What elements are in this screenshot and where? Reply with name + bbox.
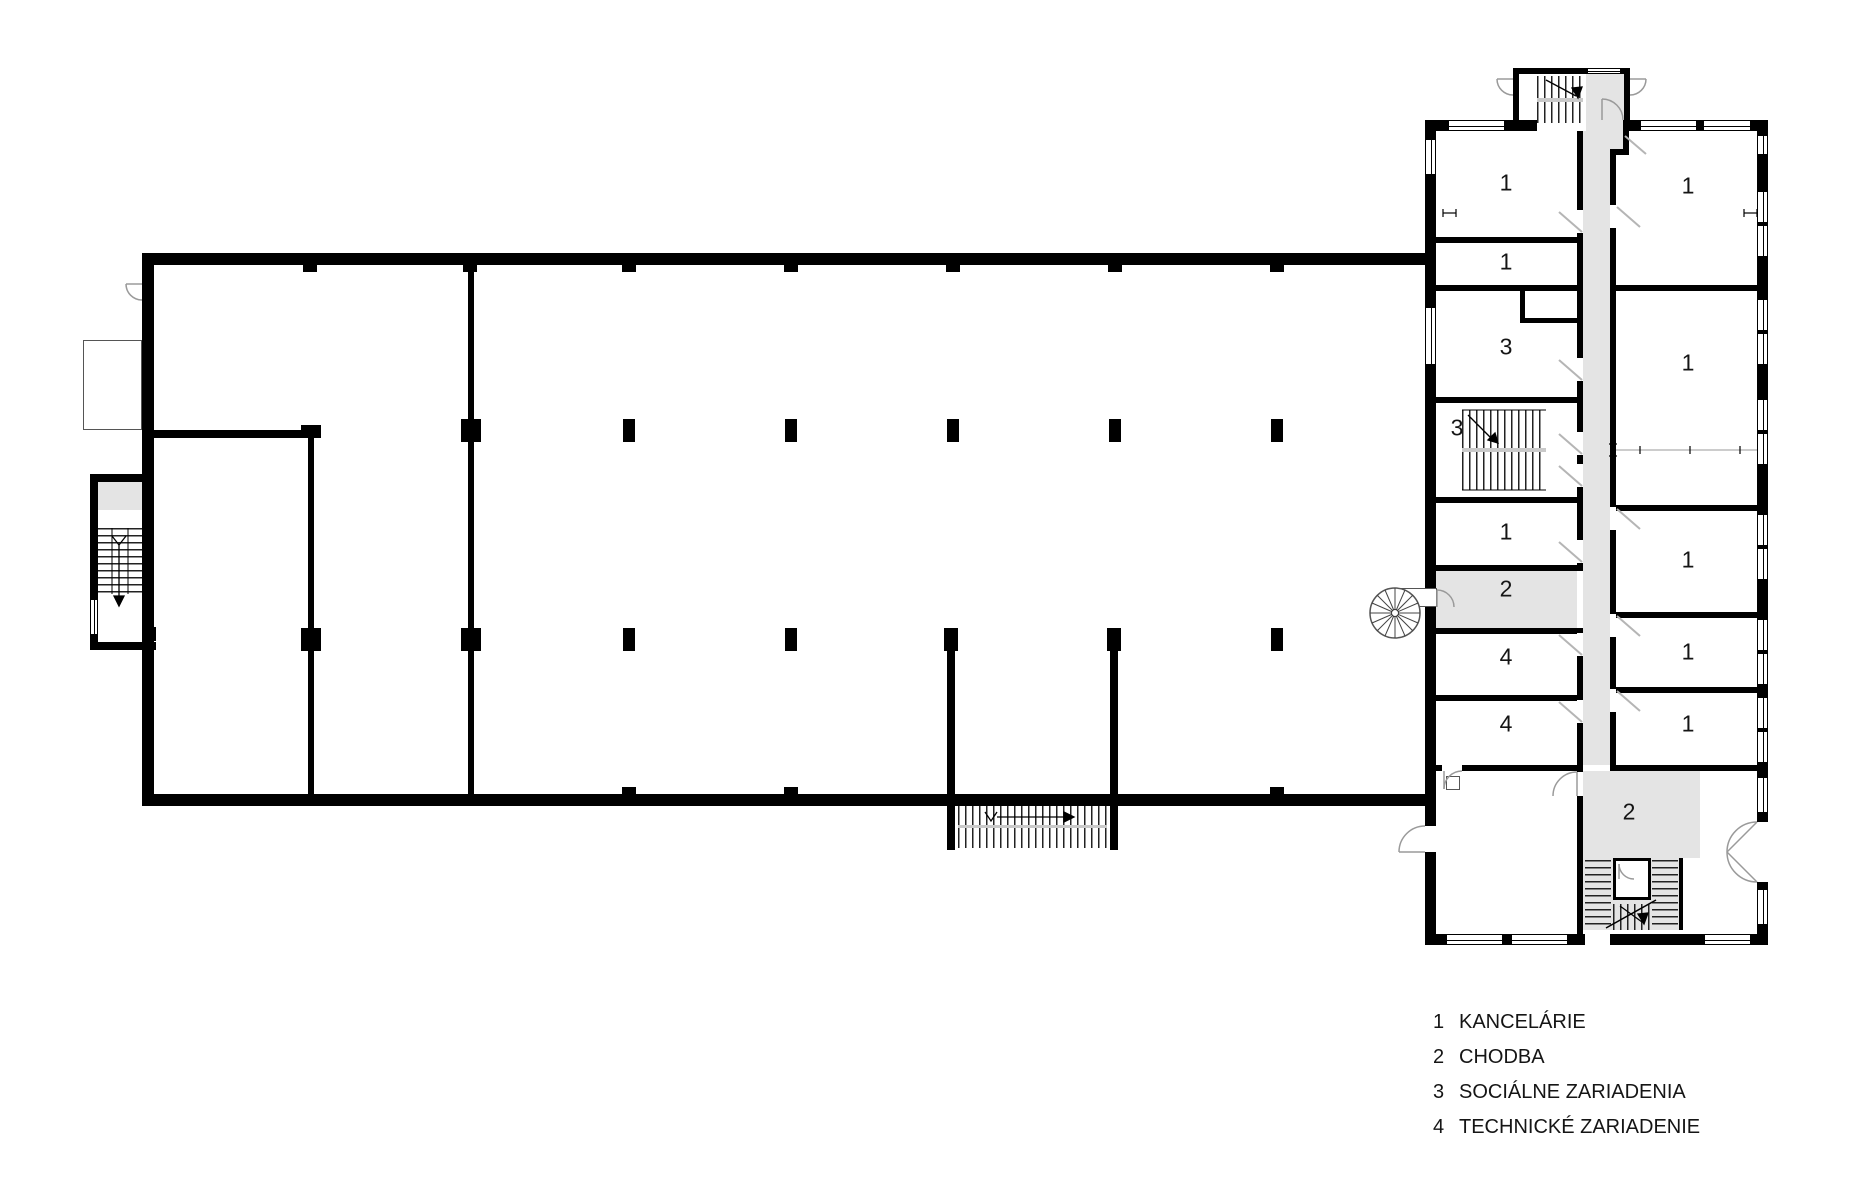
- column: [785, 419, 797, 442]
- floor-plan: 11331244211111 1KANCELÁRIE2CHODBA3SOCIÁL…: [0, 0, 1872, 1190]
- pilaster: [784, 265, 798, 272]
- legend-number: 3: [1433, 1081, 1459, 1104]
- wall: [1110, 650, 1118, 794]
- wall: [1425, 120, 1436, 945]
- wall: [142, 253, 1436, 265]
- pilaster: [1108, 265, 1122, 272]
- pilaster: [1270, 265, 1284, 272]
- window: [1757, 226, 1768, 256]
- corridor-floor: [1583, 131, 1610, 770]
- pilaster: [784, 787, 798, 794]
- column: [947, 419, 959, 442]
- wall: [154, 430, 314, 438]
- pilaster: [1270, 787, 1284, 794]
- wall: [1436, 285, 1577, 291]
- room-label: 1: [1500, 170, 1513, 197]
- room-label: 1: [1500, 519, 1513, 546]
- elevator-shaft: [1613, 858, 1651, 900]
- column: [785, 628, 797, 651]
- window: [1757, 434, 1768, 464]
- legend-label: CHODBA: [1459, 1046, 1545, 1069]
- window: [1425, 308, 1436, 364]
- window: [1757, 778, 1768, 812]
- legend-label: SOCIÁLNE ZARIADENIA: [1459, 1081, 1686, 1104]
- pilaster: [622, 787, 636, 794]
- wall: [1436, 695, 1577, 701]
- wing-side-staircase: [1462, 410, 1546, 448]
- wall: [1616, 687, 1757, 693]
- stair-rail: [112, 410, 1546, 594]
- column: [1271, 419, 1283, 442]
- pilaster: [946, 265, 960, 272]
- window: [1449, 120, 1504, 131]
- window: [1757, 334, 1768, 364]
- corridor-floor: [1583, 770, 1700, 858]
- room-label: 1: [1682, 350, 1695, 377]
- wing-side-staircase: [1462, 452, 1546, 490]
- window: [1757, 300, 1768, 330]
- stair-landing: [958, 825, 1107, 828]
- column: [1109, 419, 1121, 442]
- legend-label: KANCELÁRIE: [1459, 1011, 1586, 1034]
- column: [944, 628, 958, 651]
- wall: [1436, 237, 1577, 243]
- wall: [90, 642, 156, 650]
- legend-item: 4TECHNICKÉ ZARIADENIE: [1433, 1110, 1700, 1145]
- door-opening: [1757, 822, 1768, 882]
- door-opening: [1583, 765, 1610, 771]
- door-opening: [1585, 934, 1610, 945]
- window: [1757, 192, 1768, 222]
- legend-number: 2: [1433, 1046, 1459, 1069]
- fixture: [1446, 776, 1460, 790]
- stair-landing: [98, 482, 142, 510]
- column: [461, 419, 481, 442]
- door-opening: [1577, 432, 1583, 455]
- room-label: 4: [1500, 711, 1513, 738]
- wall: [468, 265, 474, 794]
- wall: [1513, 68, 1519, 120]
- window: [1704, 120, 1750, 131]
- wall: [90, 474, 142, 482]
- room-label: 1: [1682, 173, 1695, 200]
- legend-item: 1KANCELÁRIE: [1433, 1005, 1700, 1040]
- room-label: 1: [1682, 711, 1695, 738]
- wall: [1436, 497, 1577, 503]
- door-opening: [1577, 210, 1583, 233]
- window: [1757, 400, 1768, 430]
- legend-number: 4: [1433, 1116, 1459, 1139]
- window: [1447, 934, 1502, 945]
- wall: [142, 794, 1436, 806]
- wall: [1679, 858, 1683, 930]
- window: [1757, 654, 1768, 684]
- corridor-floor: [1586, 74, 1624, 120]
- room-label: 2: [1623, 799, 1636, 826]
- door-opening: [1577, 633, 1583, 656]
- column: [623, 419, 635, 442]
- room-label: 3: [1451, 415, 1464, 442]
- wall: [1520, 318, 1577, 323]
- wall: [1624, 68, 1630, 120]
- legend-number: 1: [1433, 1011, 1459, 1034]
- wall: [947, 650, 955, 794]
- wall: [1623, 120, 1629, 155]
- legend-label: TECHNICKÉ ZARIADENIE: [1459, 1116, 1700, 1139]
- wall: [947, 806, 955, 850]
- legend: 1KANCELÁRIE2CHODBA3SOCIÁLNE ZARIADENIA4T…: [1433, 1005, 1700, 1145]
- room-label: 2: [1500, 576, 1513, 603]
- wall: [1110, 806, 1118, 850]
- wall: [308, 434, 314, 794]
- window: [1757, 136, 1768, 154]
- window: [1757, 890, 1768, 924]
- window: [1705, 934, 1750, 945]
- wall: [142, 253, 154, 806]
- pilaster: [463, 265, 477, 272]
- door-opening: [1577, 772, 1583, 796]
- stair-landing: [1395, 588, 1437, 607]
- column: [623, 628, 635, 651]
- wall: [1610, 155, 1616, 765]
- column: [1271, 628, 1283, 651]
- wall: [1616, 285, 1757, 291]
- pilaster: [303, 265, 317, 272]
- door-opening: [1577, 540, 1583, 563]
- window: [1757, 549, 1768, 579]
- wall: [1616, 505, 1757, 511]
- side-staircase: [98, 528, 142, 594]
- main-staircase: [1613, 904, 1651, 930]
- canopy: [83, 340, 142, 430]
- window: [1641, 120, 1696, 131]
- wall: [1616, 612, 1757, 618]
- room-label: 1: [1682, 547, 1695, 574]
- room-label: 3: [1500, 334, 1513, 361]
- room-label: 4: [1500, 644, 1513, 671]
- room-label: 1: [1500, 249, 1513, 276]
- wall: [1436, 628, 1577, 634]
- window: [1425, 140, 1436, 174]
- door-opening: [1610, 205, 1616, 228]
- column: [301, 425, 321, 438]
- door-opening: [1425, 826, 1436, 852]
- entry-staircase: [1537, 102, 1583, 123]
- door-opening: [1577, 571, 1583, 628]
- main-staircase: [1652, 860, 1678, 930]
- wall: [1436, 565, 1577, 571]
- window: [90, 600, 98, 634]
- window: [1588, 68, 1620, 74]
- door-opening: [1442, 765, 1462, 771]
- column: [461, 628, 481, 651]
- corridor-floor: [1586, 120, 1624, 131]
- pilaster: [148, 627, 156, 641]
- entry-staircase: [1537, 76, 1583, 98]
- window: [1757, 515, 1768, 545]
- column: [1107, 628, 1121, 651]
- main-staircase: [1585, 860, 1611, 930]
- door-opening: [1577, 464, 1583, 487]
- pilaster: [622, 265, 636, 272]
- legend-item: 2CHODBA: [1433, 1040, 1700, 1075]
- window: [1757, 732, 1768, 762]
- door-opening: [1577, 358, 1583, 381]
- wall: [1436, 397, 1577, 403]
- window: [1512, 934, 1567, 945]
- window: [1757, 698, 1768, 728]
- door-opening: [1577, 700, 1583, 723]
- column: [301, 628, 321, 651]
- legend-item: 3SOCIÁLNE ZARIADENIA: [1433, 1075, 1700, 1110]
- window: [1757, 620, 1768, 650]
- room-label: 1: [1682, 639, 1695, 666]
